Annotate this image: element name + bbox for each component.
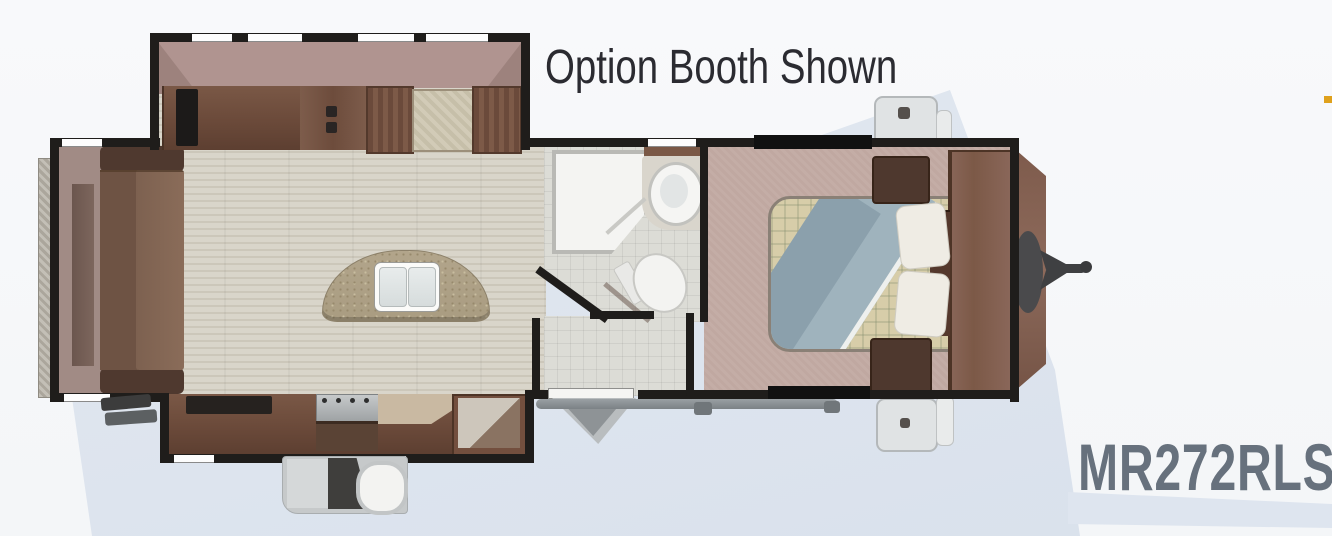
booth-bench-left — [366, 86, 414, 154]
front-wardrobe — [948, 150, 1012, 390]
range-knob-icon — [322, 398, 327, 403]
oven-door — [316, 421, 378, 451]
awning-end-cap — [824, 401, 840, 413]
booth-bench-right — [472, 86, 522, 154]
entry-landing-floor — [544, 316, 690, 396]
entry-threshold — [548, 388, 634, 399]
range-knob-icon — [336, 398, 341, 403]
bathroom-sink-bowl — [660, 174, 688, 208]
countertop-insert — [186, 396, 272, 414]
fireplace-knob-icon — [326, 122, 337, 133]
rear-sofa-back-cushions — [100, 170, 138, 370]
range-knob-icon — [350, 398, 355, 403]
slideout-wall-band — [158, 42, 522, 88]
model-number-label: MR272RLS — [1078, 434, 1332, 500]
rear-window-shade — [72, 184, 94, 366]
slideout-window — [426, 34, 488, 42]
outside-kitchen-panel — [287, 459, 331, 508]
pantry-side-wall — [532, 318, 540, 394]
sink-basin-left — [379, 267, 407, 307]
hitch-coupler — [1080, 261, 1092, 273]
jack-pad-bolt-icon — [898, 107, 910, 119]
floorplan-canvas: Option Booth Shown MR272RLS — [0, 0, 1332, 536]
page-title: Option Booth Shown — [545, 44, 897, 92]
outside-sink-basin — [356, 461, 408, 515]
bath-bedroom-wall — [700, 140, 708, 322]
front-wall — [1010, 138, 1019, 402]
slideout-right-wall — [521, 33, 530, 150]
slideout-window — [192, 34, 232, 42]
nightstand-bottom — [870, 338, 932, 394]
bedroom-window-top — [754, 135, 872, 149]
range-knob-icon — [364, 398, 369, 403]
kitchen-window — [174, 455, 214, 463]
rear-wall — [50, 138, 59, 402]
refrigerator-door-panel — [458, 398, 520, 448]
rear-window-top — [62, 139, 102, 147]
bedroom-window-bottom — [768, 386, 870, 399]
tv — [176, 89, 198, 146]
slideout-window — [248, 34, 302, 42]
hallway-jog-wall — [686, 313, 694, 399]
fireplace-knob-icon — [326, 106, 337, 117]
rear-sofa-seat-cushions — [136, 170, 184, 370]
sink-basin-right — [408, 267, 436, 307]
awning-rail — [536, 399, 838, 409]
front-corner-jack-bottom — [936, 396, 954, 446]
pillow — [893, 270, 950, 338]
sofa-armrest-bottom — [100, 368, 184, 394]
bumpout-right-wall — [525, 393, 534, 463]
nightstand-top — [872, 156, 930, 204]
slideout-window — [358, 34, 414, 42]
bumpout-left-wall — [160, 393, 169, 463]
pillow — [895, 202, 951, 271]
kitchen-overhead-cabinet — [300, 86, 366, 150]
awning-end-cap — [694, 402, 712, 415]
bathroom-window — [648, 139, 696, 147]
edge-artifact — [1324, 96, 1332, 103]
jack-pad-bolt-icon — [900, 418, 910, 428]
booth-table — [412, 89, 474, 152]
slideout-left-wall — [150, 33, 159, 150]
